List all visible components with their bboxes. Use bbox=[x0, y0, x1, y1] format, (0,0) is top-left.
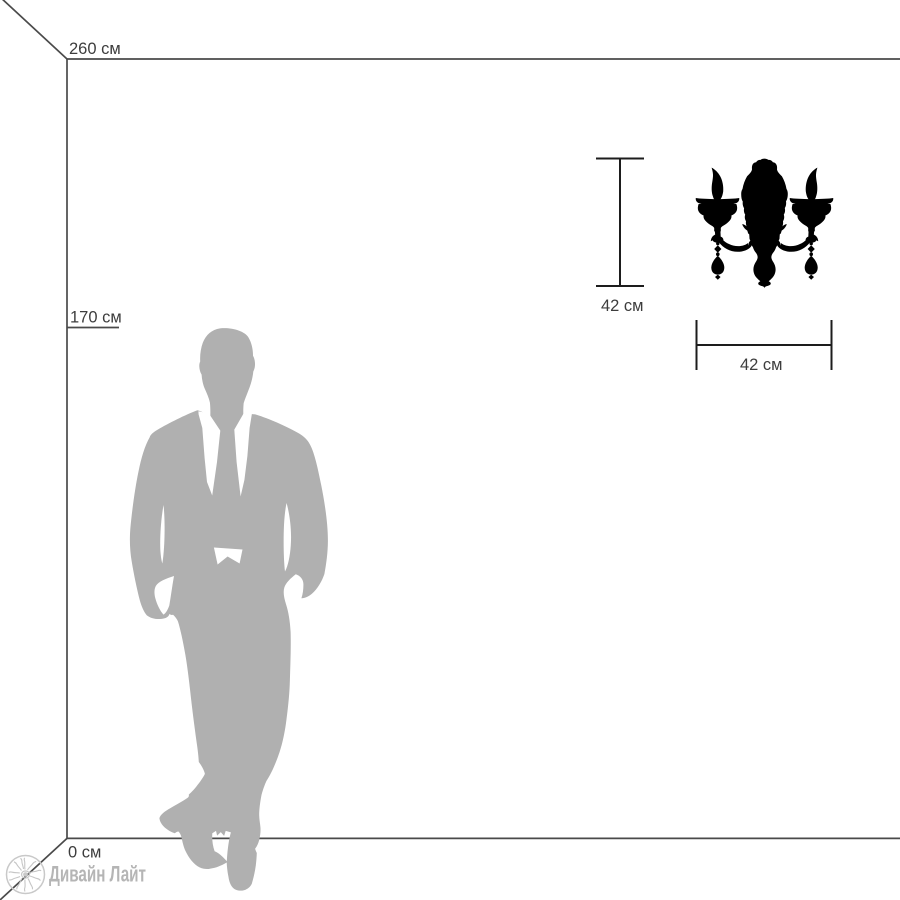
svg-text:42 см: 42 см bbox=[740, 356, 783, 374]
svg-text:42 см: 42 см bbox=[601, 297, 644, 315]
svg-text:260 см: 260 см bbox=[69, 40, 121, 58]
svg-text:Дивайн Лайт: Дивайн Лайт bbox=[49, 862, 146, 887]
svg-text:0 см: 0 см bbox=[68, 844, 101, 862]
svg-text:170 см: 170 см bbox=[70, 309, 122, 327]
